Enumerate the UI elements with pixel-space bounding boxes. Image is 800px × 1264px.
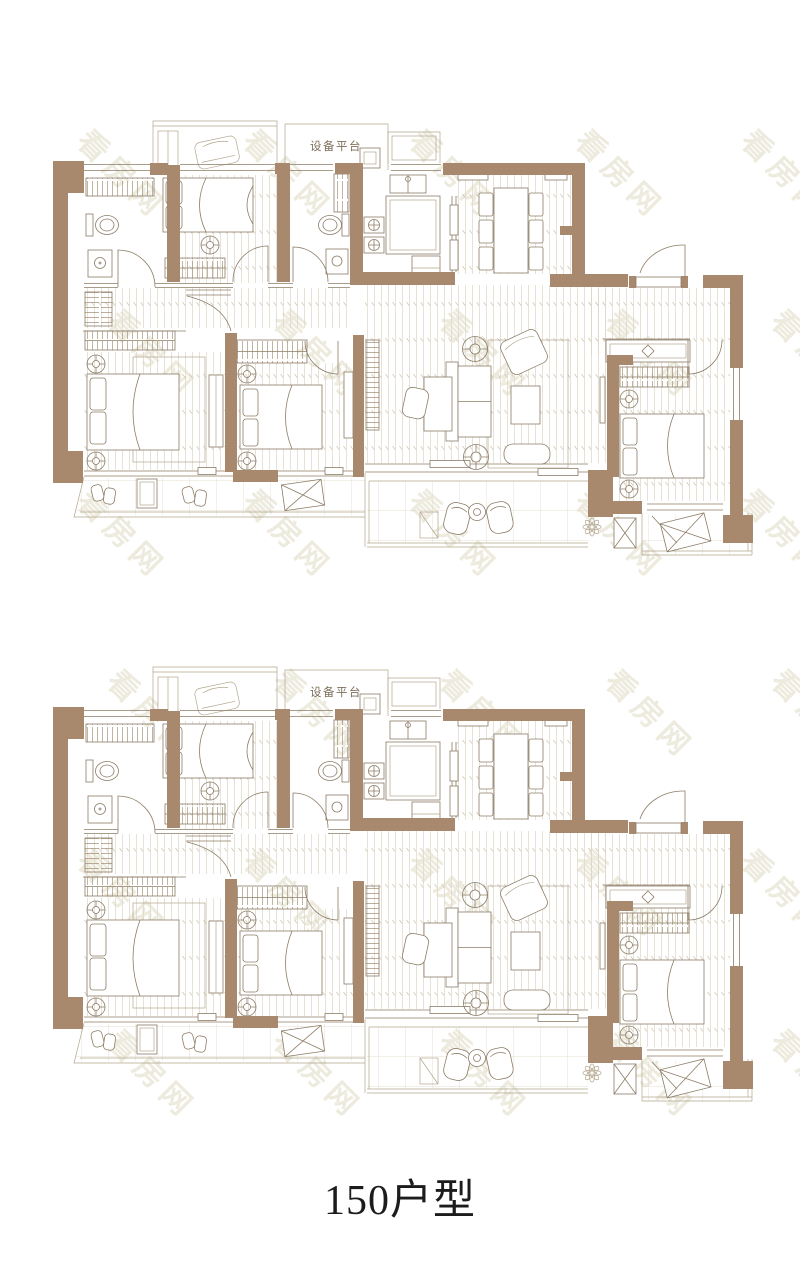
unit-plan-lower (53, 667, 753, 1101)
floor-plan-drawing: 设备平台 (0, 0, 800, 1264)
plan-caption: 150户型 (0, 1166, 800, 1227)
floor-plan-page: { "caption": { "text": "150户型" }, "plan"… (0, 0, 800, 1264)
unit-plan-upper (53, 121, 753, 555)
